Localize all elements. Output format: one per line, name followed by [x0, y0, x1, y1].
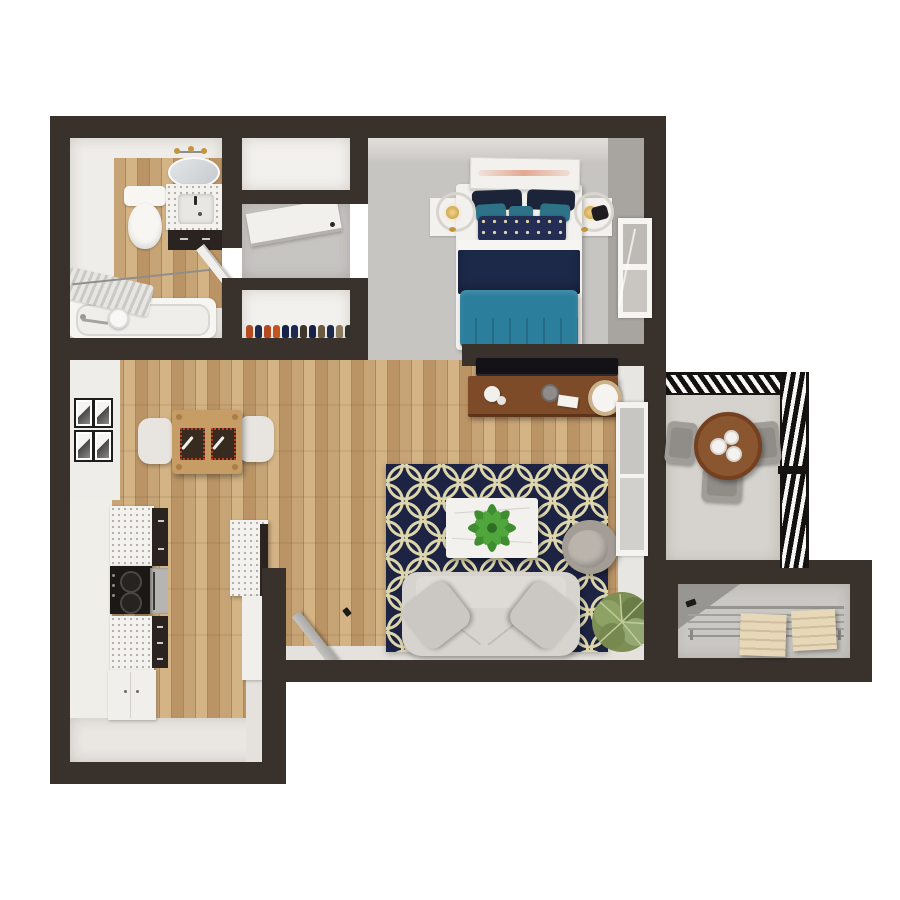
artwork-pink-streak [478, 170, 570, 176]
closet-top-floor [242, 138, 350, 190]
console-vase-small [497, 396, 506, 405]
console-plate [541, 384, 559, 402]
table-plant [464, 502, 520, 554]
base-cabinet-seam [130, 672, 131, 718]
cup [726, 446, 742, 462]
cabinet-handle [158, 520, 164, 522]
utensil-icon [212, 436, 225, 450]
cabinet-handle [202, 238, 210, 240]
wall-bathroom-divider-upper [222, 116, 242, 248]
wall-block-bottom [50, 338, 368, 360]
shoe [336, 325, 343, 338]
accent-chair-cushion [568, 530, 608, 568]
navy-blanket [458, 250, 580, 294]
frame-art [78, 402, 90, 424]
railing-post [778, 466, 806, 474]
window-pane [623, 270, 647, 312]
frame-art [97, 434, 109, 458]
shoe [309, 325, 316, 338]
chair-right [240, 416, 274, 462]
table-leg [176, 464, 182, 470]
drawer-handle [157, 658, 163, 660]
shoe [291, 325, 298, 338]
shoe [318, 325, 325, 338]
sofa [402, 572, 580, 656]
wall-extension-bottom [50, 762, 286, 784]
vanity-light-bulb [174, 148, 180, 154]
oven-handle [153, 572, 155, 610]
wall-closet-shelf [222, 190, 368, 204]
shelf-leg [838, 630, 841, 640]
cup [724, 430, 739, 445]
shoe [255, 325, 262, 338]
sink-drain [198, 212, 202, 216]
bedroom-window [618, 218, 652, 318]
chair-seat [668, 427, 693, 459]
vanity-light-bulb [201, 148, 207, 154]
shoe [300, 325, 307, 338]
cabinet-knob [136, 690, 139, 693]
wall-storage-top [652, 560, 872, 584]
vanity-cabinet [168, 230, 222, 250]
upper-cabinet-front [152, 508, 168, 566]
door-handle-icon [330, 222, 335, 227]
utensil-icon [181, 436, 194, 450]
table-leg [176, 414, 182, 420]
toilet-paper-roll [108, 308, 129, 329]
frame-art [78, 434, 90, 458]
stove-knob [112, 594, 115, 597]
balcony-table [694, 412, 762, 480]
lamp-left [446, 206, 459, 219]
shelf-leg [690, 630, 693, 640]
table-leg [232, 414, 238, 420]
shoe [327, 325, 334, 338]
gallery-frame [74, 430, 94, 462]
stove-knob [112, 584, 115, 587]
floorplan-render [0, 0, 900, 900]
gallery-frame [74, 398, 94, 428]
wall-living-bottom [262, 660, 678, 682]
wall-left [50, 116, 70, 784]
cabinet-handle [180, 238, 188, 240]
wood-box-2 [791, 609, 837, 651]
lower-cabinet-counter [110, 616, 154, 670]
toilet-bowl [128, 203, 162, 249]
shoe-row [246, 322, 352, 338]
lattice-lumbar-pillow [478, 216, 566, 242]
patio-door-pane [620, 408, 644, 474]
wall-closet-divider [222, 278, 368, 290]
burner-icon [120, 592, 142, 614]
balcony-chair-left [664, 421, 698, 466]
drawer-handle [157, 642, 163, 644]
base-cabinet [108, 670, 156, 720]
wood-box-1 [739, 613, 786, 657]
gallery-frame [93, 430, 113, 462]
patio-door-pane [620, 478, 644, 550]
placemat-right [211, 428, 236, 460]
placemat-left [180, 428, 205, 460]
shoe [246, 325, 253, 338]
peninsula-lower-counter [242, 596, 262, 680]
stove-knob [112, 574, 115, 577]
chair-left [138, 418, 172, 464]
gallery-frame [93, 398, 113, 428]
vanity-light-bulb [188, 146, 194, 152]
cabinet-knob [124, 690, 127, 693]
cabinet-handle [158, 548, 164, 550]
sink-faucet-icon [194, 196, 197, 205]
tv [476, 358, 618, 376]
burner-icon [120, 571, 142, 593]
shoe [282, 325, 289, 338]
shoe [273, 325, 280, 338]
table-leg [232, 464, 238, 470]
lamp-base-left [449, 227, 456, 232]
drawer-handle [157, 626, 163, 628]
frame-art [97, 402, 109, 424]
wall-storage-bottom [652, 658, 872, 682]
upper-cabinet-counter [110, 506, 154, 566]
lamp-base-right [581, 227, 588, 232]
patio-door [616, 402, 648, 556]
entry-tile-floor [70, 718, 262, 762]
shoe [264, 325, 271, 338]
